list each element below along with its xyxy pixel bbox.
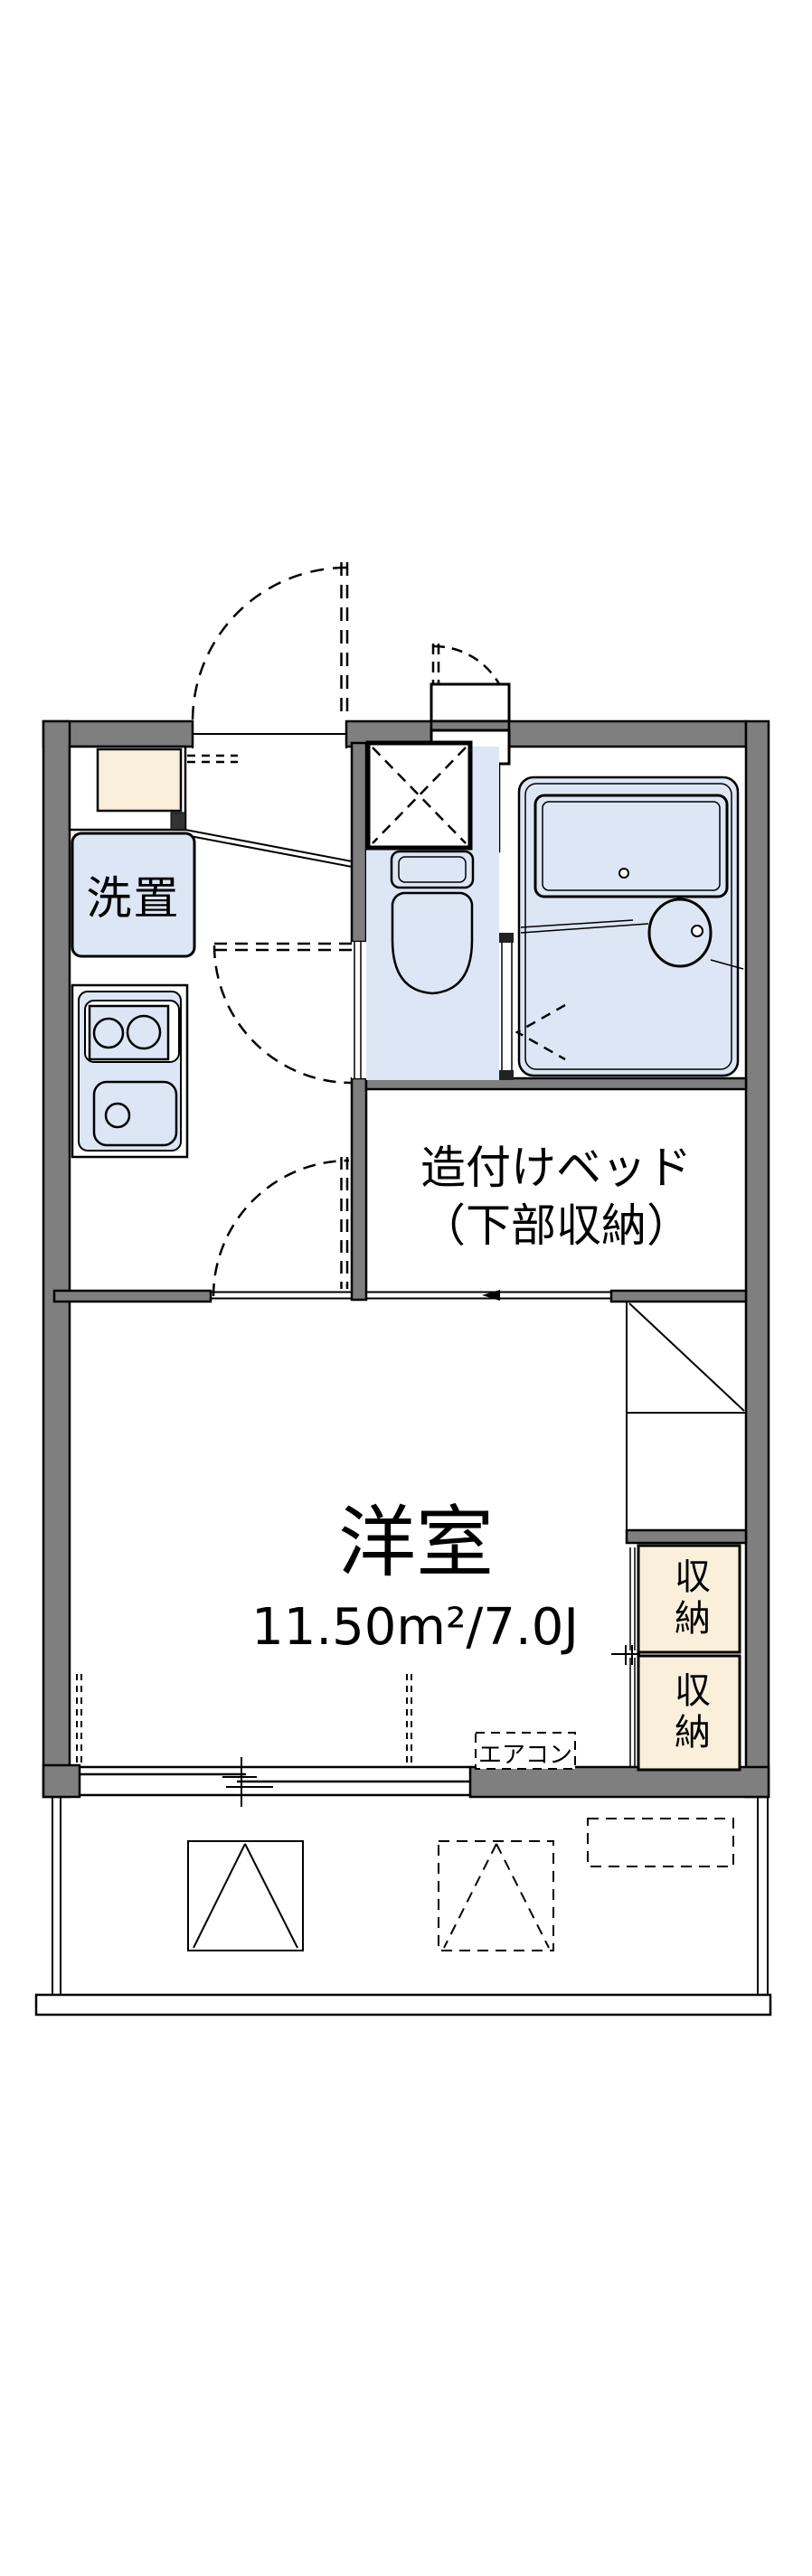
entrance-door-arc <box>193 562 347 721</box>
sink-icon <box>94 1082 176 1145</box>
toilet-door <box>214 942 366 1083</box>
bathroom <box>499 777 743 1080</box>
built-in-bed-label: 造付けベッド <box>366 1132 746 1197</box>
balcony <box>36 1797 770 2015</box>
washer-label: 洗置 <box>72 833 194 956</box>
shoe-cabinet <box>70 747 185 830</box>
room-name-label: 洋室 <box>271 1479 561 1592</box>
bathtub-icon <box>535 795 727 897</box>
balcony-window <box>80 1757 470 1807</box>
storage-shelf <box>627 1302 746 1530</box>
aircon-label: エアコン <box>476 1736 575 1769</box>
toilet-icon <box>392 851 473 993</box>
kitchen-counter <box>72 985 187 1157</box>
closet-divider <box>611 1645 640 1665</box>
bed-storage-label: （下部収納） <box>366 1189 746 1255</box>
entrance-step-marks <box>187 756 238 762</box>
floor-plan-drawing <box>0 0 812 2576</box>
floor-plan-page: 洗置 造付けベッド （下部収納） 洋室 11.50m²/7.0J エアコン 収納… <box>0 0 812 2576</box>
room-door-arc <box>213 1157 349 1296</box>
room-size-label: 11.50m²/7.0J <box>234 1598 596 1657</box>
stove-icon <box>85 1001 179 1062</box>
window-side-marks <box>77 1674 411 1763</box>
washbasin-icon <box>649 899 711 966</box>
balcony-equipment-solid <box>188 1841 303 1951</box>
meter-box <box>431 684 509 721</box>
balcony-equipment-dashed <box>439 1841 553 1951</box>
entrance-opening <box>193 721 346 748</box>
closet-upper-label: 収納 <box>638 1546 740 1652</box>
hall-partition-line <box>185 830 352 867</box>
balcony-outline-dashed <box>588 1819 733 1866</box>
room-boundary-lines <box>211 1293 611 1299</box>
closet-lower-label: 収納 <box>638 1656 740 1770</box>
